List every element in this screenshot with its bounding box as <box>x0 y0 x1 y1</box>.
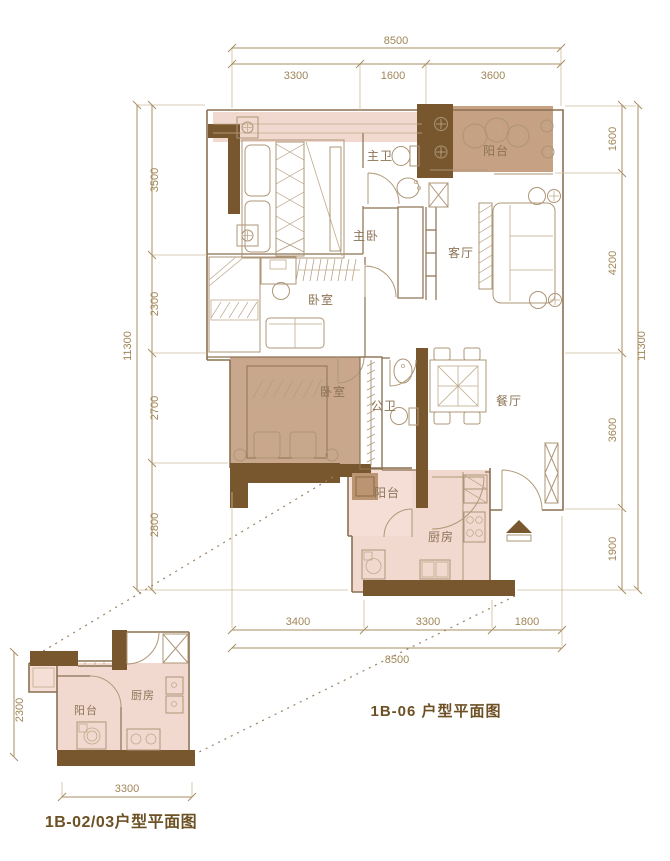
label-dining-room: 餐厅 <box>496 393 522 408</box>
floorplan-drawing: 主卧 主卫 阳台 客厅 卧室 卧室 公卫 餐厅 阳台 厨房 8500 3300 … <box>0 0 670 861</box>
dim-small-left: 2300 <box>14 698 26 722</box>
dimension-right: 1600 4200 3600 1900 11300 <box>517 101 648 594</box>
label-master-bath: 主卫 <box>367 149 393 163</box>
bath-shaft-window <box>429 183 448 207</box>
small-dimension-bottom: 3300 <box>58 782 196 801</box>
wall-block-topleft <box>208 124 240 214</box>
bedroom-a-furniture <box>209 257 360 352</box>
living-room-furniture <box>479 188 562 309</box>
label-living-room: 客厅 <box>448 245 474 260</box>
label-guest-bath: 公卫 <box>371 399 397 413</box>
entry-arrow <box>506 520 532 541</box>
dim-small-bottom: 3300 <box>115 783 139 795</box>
dim-bottom-total: 8500 <box>385 654 409 666</box>
label-service-balcony: 阳台 <box>374 485 400 500</box>
dim-left-seg1: 3500 <box>149 168 161 192</box>
hall-closet <box>398 207 423 298</box>
wall-block-bottomleft-v <box>230 463 248 508</box>
dim-left-seg4: 2800 <box>149 513 161 537</box>
nightstand <box>237 225 258 246</box>
label-bedroom-b: 卧室 <box>320 384 346 399</box>
wall-block-central <box>416 348 428 508</box>
small-floorplan: 阳台 厨房 2300 3300 1B-02/03户型平面图 <box>10 630 197 831</box>
side-table <box>530 292 547 309</box>
dim-bottom-seg1: 3400 <box>286 616 310 628</box>
plant <box>549 294 562 307</box>
dim-bottom-seg2: 3300 <box>416 616 440 628</box>
dim-right-seg3: 3600 <box>607 418 619 442</box>
main-plan-title: 1B-06 户型平面图 <box>370 702 501 720</box>
dim-left-total: 11300 <box>122 331 134 361</box>
side-table <box>529 188 546 205</box>
dim-left-seg3: 2700 <box>149 396 161 420</box>
dim-right-seg4: 1900 <box>607 537 619 561</box>
sofa <box>493 203 555 303</box>
dim-top-seg1: 3300 <box>284 70 308 82</box>
label-kitchen: 厨房 <box>428 529 454 544</box>
dim-top-seg2: 1600 <box>381 70 405 82</box>
small-entry-door <box>127 632 159 664</box>
small-wall-bottom <box>57 750 195 766</box>
small-plan-title: 1B-02/03户型平面图 <box>45 812 197 831</box>
plant <box>548 190 561 203</box>
small-wall-topleft <box>30 651 78 666</box>
entry-door <box>502 470 542 510</box>
bedroom-b-floor <box>230 357 360 469</box>
dimension-top: 8500 3300 1600 3600 <box>228 35 565 110</box>
dim-right-seg1: 1600 <box>607 127 619 151</box>
small-wall-topmid <box>112 630 127 670</box>
small-room-fills <box>29 663 188 752</box>
dining-furniture <box>430 348 486 424</box>
entry-shaft-window <box>545 443 558 503</box>
dim-top-seg3: 3600 <box>481 70 505 82</box>
dim-right-total: 11300 <box>636 331 648 361</box>
label-small-kitchen: 厨房 <box>131 689 155 702</box>
wall-block-topmid <box>417 104 453 178</box>
master-bath-door <box>368 173 399 204</box>
label-north-balcony: 阳台 <box>483 143 509 158</box>
guest-bath-fixtures <box>391 359 419 425</box>
bedroom-a-door <box>365 266 396 297</box>
label-small-balcony: 阳台 <box>74 703 98 717</box>
dim-top-total: 8500 <box>384 35 408 47</box>
dim-left-seg2: 2300 <box>149 292 161 316</box>
dim-bottom-seg3: 1800 <box>515 616 539 628</box>
wall-block-kitchen-bottom <box>363 580 515 596</box>
dim-right-seg2: 4200 <box>607 251 619 275</box>
room-fills <box>213 106 553 592</box>
small-dimension-left: 2300 <box>10 648 26 761</box>
projection-line-lower <box>195 596 515 754</box>
floorplan-page: 主卧 主卫 阳台 客厅 卧室 卧室 公卫 餐厅 阳台 厨房 8500 3300 … <box>0 0 670 861</box>
label-bedroom-a: 卧室 <box>308 292 334 307</box>
label-master-bedroom: 主卧 <box>353 229 379 243</box>
main-floorplan: 主卧 主卫 阳台 客厅 卧室 卧室 公卫 餐厅 阳台 厨房 8500 3300 … <box>122 35 648 720</box>
